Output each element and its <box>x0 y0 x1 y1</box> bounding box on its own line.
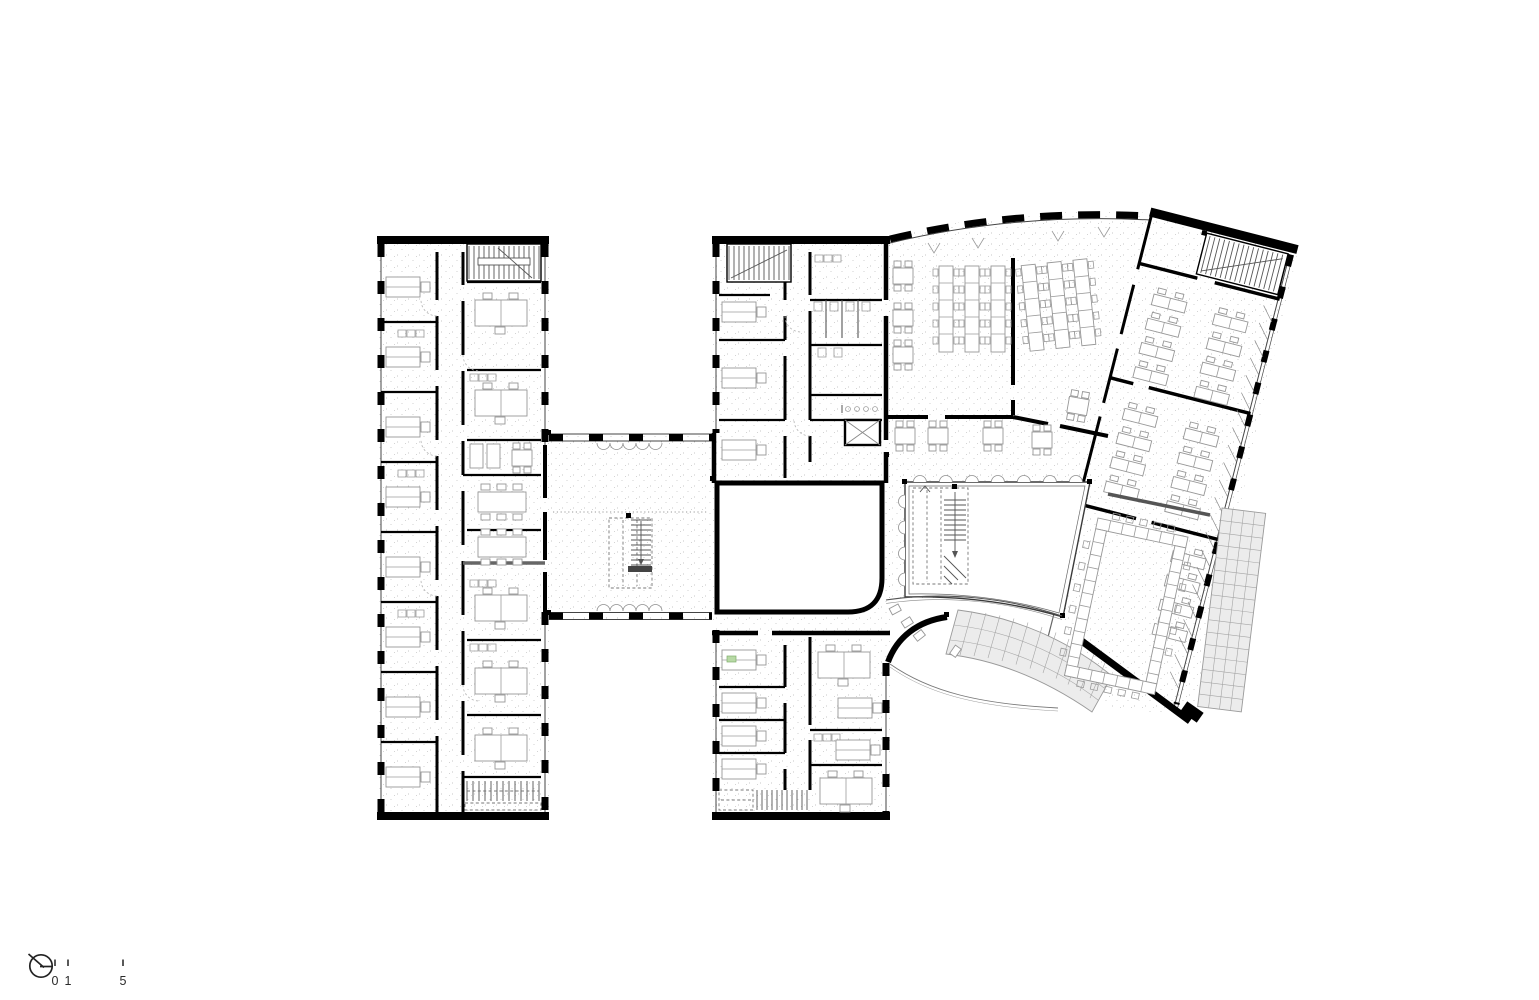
bench-scallops-bottom <box>597 605 662 612</box>
scale-label-5: 5 <box>120 974 127 988</box>
courtyard-void <box>717 483 882 612</box>
middle-wing-stair-top <box>727 244 791 282</box>
scale-label-0: 0 <box>52 974 59 988</box>
bench-scallops-top <box>597 443 662 450</box>
floor-plan-page: 0 1 5 <box>0 0 1539 1000</box>
floor-plan-drawing: 0 1 5 <box>0 0 1539 1000</box>
elevator <box>845 420 880 445</box>
north-arrow-icon <box>29 954 53 977</box>
left-wing-stair-top <box>467 244 541 281</box>
green-accent-item <box>727 656 736 662</box>
scale-label-1: 1 <box>65 974 72 988</box>
scale-bar: 0 1 5 <box>52 960 127 989</box>
